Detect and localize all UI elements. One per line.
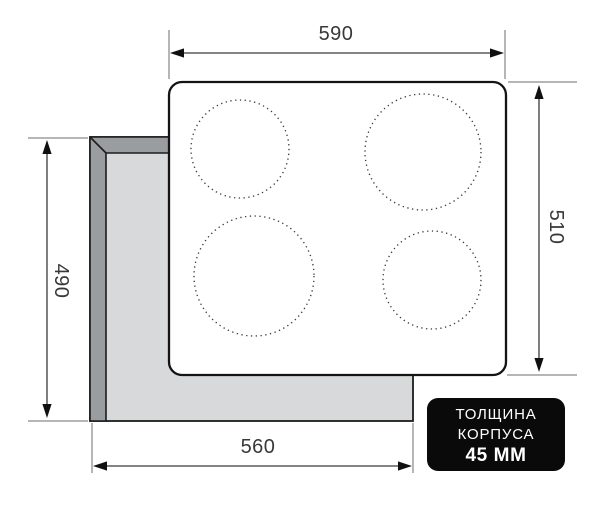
hob-panel	[169, 82, 506, 375]
dim-bottom-label: 560	[218, 435, 298, 459]
arrow-left-icon	[93, 461, 107, 470]
arrow-right-icon	[490, 48, 504, 57]
dim-top-label: 590	[296, 22, 376, 46]
cooktop-dimensions-diagram: 590 510 490 560 ТОЛЩИНА КОРПУСА 45 ММ	[0, 0, 600, 514]
arrow-down-icon	[534, 358, 543, 372]
arrow-up-icon	[42, 140, 51, 154]
badge-line-2: КОРПУСА	[458, 425, 535, 445]
arrow-left-icon	[170, 48, 184, 57]
arrow-right-icon	[398, 461, 412, 470]
dim-right-label: 510	[544, 187, 568, 267]
badge-line-1: ТОЛЩИНА	[455, 405, 536, 425]
dim-left-label: 490	[49, 241, 73, 321]
hob-outline	[169, 82, 506, 375]
thickness-badge: ТОЛЩИНА КОРПУСА 45 ММ	[427, 398, 565, 471]
arrow-down-icon	[42, 404, 51, 418]
badge-thickness-value: 45 ММ	[465, 445, 526, 467]
arrow-up-icon	[534, 85, 543, 99]
